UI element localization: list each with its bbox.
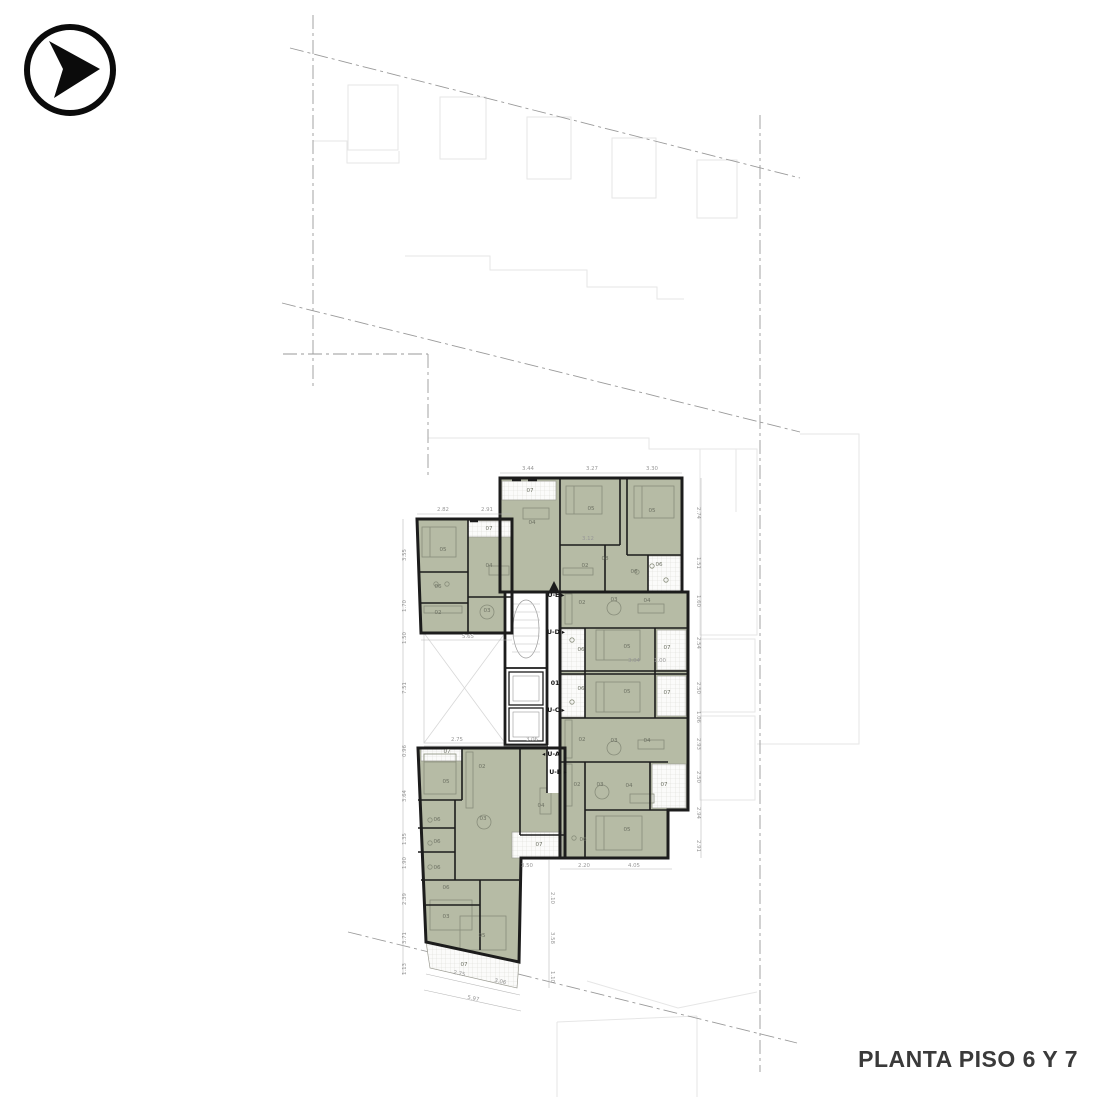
room-number: 02 xyxy=(578,600,585,606)
room-number: 07 xyxy=(526,488,534,494)
room-number: 02 xyxy=(573,782,580,788)
elevator-1 xyxy=(509,672,543,705)
dimension-value: 2.20 xyxy=(578,863,591,869)
room-number: 05 xyxy=(623,644,631,650)
dimension-value: 1.90 xyxy=(402,856,408,869)
room-number: 07 xyxy=(535,842,543,848)
dimension-value: 3.50 xyxy=(521,863,534,869)
room-number: 02 xyxy=(581,563,588,569)
room-number: 07 xyxy=(660,782,668,788)
dimension-value: 1.70 xyxy=(402,599,408,612)
unit-entry-label: 01 xyxy=(551,680,560,687)
room-number: 06 xyxy=(442,885,450,891)
dimension-value: 3.58 xyxy=(549,932,555,945)
dimension-value: 0.96 xyxy=(402,744,408,757)
room-number: 04 xyxy=(643,738,651,744)
room-number: 06 xyxy=(433,817,441,823)
floorplan-page: 3.443.273.302.822.912.741.511.602.542.50… xyxy=(0,0,1100,1100)
dimension-value: 1.35 xyxy=(402,833,408,845)
dimension-value: 3.27 xyxy=(586,466,598,472)
dimension-value: 2.91 xyxy=(481,507,493,513)
room-number: 03 xyxy=(442,914,450,920)
unit-entry-label: U-D ▸ xyxy=(547,629,566,636)
room-number: 02 xyxy=(434,610,441,616)
room-number: 04 xyxy=(625,783,633,789)
logo-arrow-icon xyxy=(27,27,113,113)
courtyard-void xyxy=(424,633,505,743)
dimension-value: 2.75 xyxy=(453,970,466,978)
dimension-value: 2.50 xyxy=(695,682,701,695)
dimension-value: 4.05 xyxy=(628,863,640,869)
dimension-value: 2.94 xyxy=(695,807,701,820)
dimension-value: 2.54 xyxy=(695,637,701,650)
dimension-value: 1.60 xyxy=(695,595,701,608)
room-number: 04 xyxy=(537,803,545,809)
unit-entry-label: U-E ▸ xyxy=(547,592,565,599)
room-number: 05 xyxy=(587,506,595,512)
dimension-value: 3.30 xyxy=(646,466,659,472)
room-number: 05 xyxy=(439,547,447,553)
room-number: 06 xyxy=(433,839,441,845)
dimension-value: 5.65 xyxy=(462,634,474,640)
room-number: 02 xyxy=(578,737,585,743)
room-number: 07 xyxy=(443,749,451,755)
dimension-value: 2.91 xyxy=(695,840,701,852)
room-number: 02 xyxy=(478,764,485,770)
dimension-value: 2.50 xyxy=(695,771,701,784)
room-number: 05 xyxy=(623,827,631,833)
room-number: 08 xyxy=(601,556,609,562)
dimension-value: 1.00 xyxy=(654,658,667,664)
room-number: 03 xyxy=(610,738,618,744)
room-number: 06 xyxy=(433,865,441,871)
dimension-value: 3.06 xyxy=(494,978,508,986)
room-number: 05 xyxy=(648,508,656,514)
unit-entry-label: ◂ U-A xyxy=(542,751,560,758)
dimension-value: 3.44 xyxy=(522,466,535,472)
room-number: 03 xyxy=(610,597,618,603)
room-number: 03 xyxy=(483,608,491,614)
dimension-value: 3.06 xyxy=(526,737,539,743)
dimension-value: 2.82 xyxy=(437,507,449,513)
room-number: 07 xyxy=(663,645,671,651)
dimension-value: 3.64 xyxy=(402,789,408,802)
room-number: 06 xyxy=(655,562,663,568)
room-number: 05 xyxy=(442,779,450,785)
room-number: 06 xyxy=(434,584,442,590)
room-number: 03 xyxy=(479,816,487,822)
room-number: 06 xyxy=(577,647,585,653)
room-number: 06 xyxy=(579,837,587,843)
unit-entry-label: U-C ▸ xyxy=(547,707,565,714)
dimension-value: 2.39 xyxy=(402,892,408,905)
dimension-value: 3.71 xyxy=(402,932,408,944)
dimension-value: 1.06 xyxy=(695,711,701,724)
dimension-value: 1.50 xyxy=(402,631,408,644)
room-number: 07 xyxy=(485,526,493,532)
plan-title: PLANTA PISO 6 Y 7 xyxy=(858,1046,1078,1073)
room-number: 06 xyxy=(630,569,638,575)
unit-entry-label: U-B ▸ xyxy=(549,769,567,776)
room-number: 03 xyxy=(596,782,604,788)
dimension-value: 1.51 xyxy=(695,557,701,569)
dimension-value: 3.55 xyxy=(402,549,408,561)
room-number: 06 xyxy=(577,686,585,692)
dimension-value: 1.10 xyxy=(549,971,555,984)
room-number: 07 xyxy=(663,690,671,696)
dimension-value: 2.93 xyxy=(695,738,701,750)
dimension-value: 5.97 xyxy=(467,995,480,1003)
room-number: 05 xyxy=(478,933,486,939)
dimension-value: 2.74 xyxy=(695,507,701,520)
room-number: 04 xyxy=(528,520,536,526)
room-number: 04 xyxy=(643,598,651,604)
dimension-value: 3.04 xyxy=(628,658,641,664)
dimension-value: 2.10 xyxy=(549,892,555,905)
dimension-value: 2.75 xyxy=(451,737,463,743)
room-number: 05 xyxy=(623,689,631,695)
dimension-value: 1.13 xyxy=(402,963,408,975)
room-number: 07 xyxy=(460,962,468,968)
floorplan-drawing: 3.443.273.302.822.912.741.511.602.542.50… xyxy=(0,0,1100,1100)
dimension-value: 7.51 xyxy=(402,682,408,694)
room-number: 04 xyxy=(485,563,493,569)
dimension-value: 3.12 xyxy=(582,536,594,542)
